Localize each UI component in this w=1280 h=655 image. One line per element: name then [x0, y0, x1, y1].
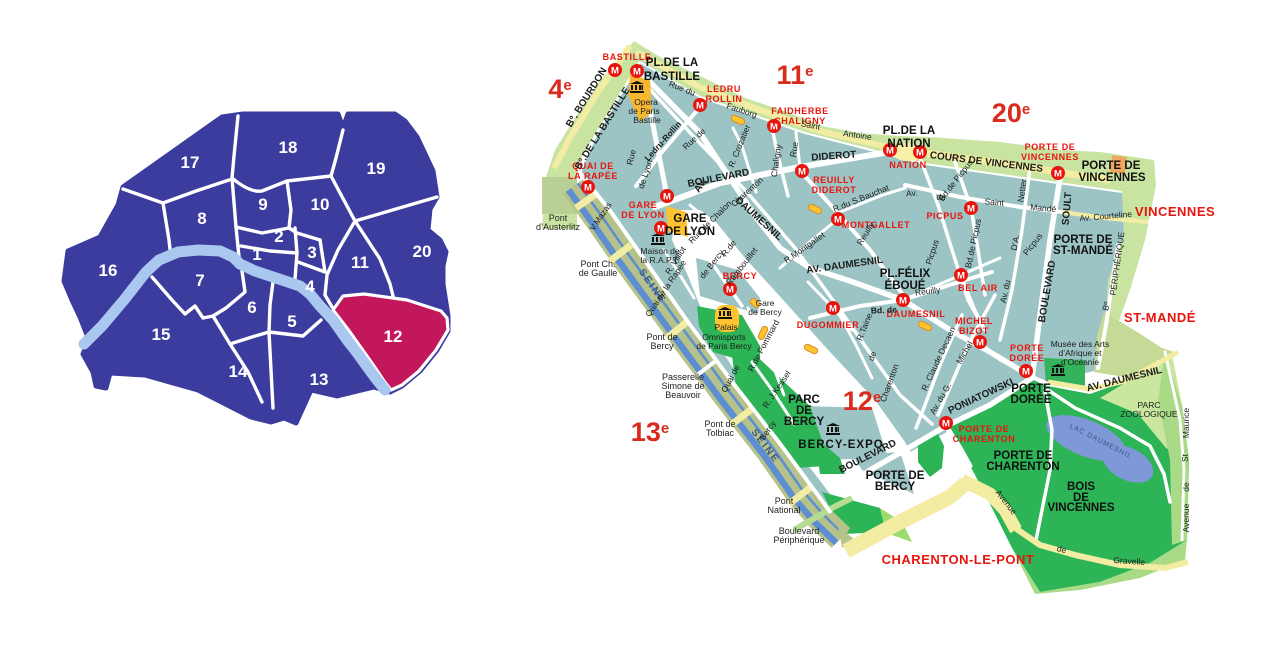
svg-text:DORÉE: DORÉE: [1009, 353, 1044, 363]
svg-text:M: M: [957, 271, 965, 282]
svg-text:Saint: Saint: [984, 196, 1005, 208]
svg-text:11: 11: [351, 253, 369, 272]
svg-text:14: 14: [229, 362, 248, 381]
svg-text:M: M: [1022, 367, 1030, 378]
svg-text:NATION: NATION: [889, 160, 926, 170]
svg-text:BASTILLE: BASTILLE: [603, 52, 652, 62]
svg-text:Maurice: Maurice: [1181, 408, 1191, 439]
svg-text:M: M: [657, 224, 665, 235]
svg-text:PORTE: PORTE: [1010, 343, 1044, 353]
svg-text:12: 12: [384, 327, 403, 346]
svg-text:St: St: [1180, 453, 1190, 462]
svg-text:DORÉE: DORÉE: [1011, 393, 1052, 406]
svg-text:18: 18: [279, 138, 298, 157]
svg-text:de Bercy: de Bercy: [748, 307, 782, 317]
svg-text:de Paris Bercy: de Paris Bercy: [696, 341, 752, 351]
svg-text:5: 5: [287, 312, 296, 331]
svg-text:13e: 13e: [631, 417, 669, 447]
svg-text:M: M: [942, 419, 950, 430]
svg-text:REUILLY: REUILLY: [813, 175, 855, 185]
svg-text:VINCENNES: VINCENNES: [1047, 502, 1114, 514]
svg-text:M: M: [967, 204, 975, 215]
svg-text:PICPUS: PICPUS: [926, 211, 963, 221]
svg-text:LA RAPÉE: LA RAPÉE: [568, 171, 618, 181]
svg-text:MICHEL: MICHEL: [955, 316, 993, 326]
svg-text:Palais: Palais: [714, 322, 737, 332]
svg-text:GARE: GARE: [629, 200, 657, 210]
svg-text:9: 9: [258, 195, 267, 214]
svg-text:M: M: [696, 101, 704, 112]
svg-text:ST-MANDÉ: ST-MANDÉ: [1053, 244, 1113, 257]
svg-text:PL.FÉLIX: PL.FÉLIX: [880, 267, 931, 280]
svg-text:2: 2: [274, 227, 283, 246]
svg-text:VINCENNES: VINCENNES: [1021, 152, 1079, 162]
svg-text:DUGOMMIER: DUGOMMIER: [797, 320, 859, 330]
svg-text:VINCENNES: VINCENNES: [1078, 172, 1145, 184]
svg-text:CHARENTON: CHARENTON: [986, 461, 1059, 473]
svg-text:LEDRU: LEDRU: [707, 84, 741, 94]
svg-text:Beauvoir: Beauvoir: [665, 390, 701, 400]
svg-text:de: de: [936, 192, 946, 202]
svg-text:PORTE DE: PORTE DE: [1082, 160, 1141, 172]
svg-text:PORTE DE: PORTE DE: [1025, 142, 1076, 152]
svg-text:Av.: Av.: [906, 188, 918, 199]
svg-text:ZOOLOGIQUE: ZOOLOGIQUE: [1120, 409, 1177, 419]
svg-text:Bd. de: Bd. de: [871, 304, 898, 315]
svg-text:15: 15: [152, 325, 171, 344]
svg-text:de: de: [1181, 482, 1191, 492]
svg-text:Bastille: Bastille: [633, 115, 661, 125]
svg-text:Périphérique: Périphérique: [773, 535, 824, 545]
svg-text:M: M: [663, 192, 671, 203]
svg-text:20: 20: [413, 242, 432, 261]
svg-text:10: 10: [311, 195, 330, 214]
svg-text:4e: 4e: [548, 74, 571, 104]
svg-text:M: M: [829, 304, 837, 315]
svg-text:Bercy: Bercy: [650, 341, 674, 351]
svg-text:19: 19: [367, 159, 386, 178]
svg-text:M: M: [798, 167, 806, 178]
svg-text:de Gaulle: de Gaulle: [579, 268, 618, 278]
svg-text:7: 7: [195, 271, 204, 290]
svg-text:National: National: [767, 505, 800, 515]
svg-text:M: M: [976, 338, 984, 349]
svg-text:DIDEROT: DIDEROT: [812, 185, 857, 195]
svg-text:PL.DE LA: PL.DE LA: [883, 125, 935, 137]
svg-text:4: 4: [305, 277, 315, 296]
svg-text:11e: 11e: [777, 60, 814, 90]
svg-text:Avenue: Avenue: [1181, 503, 1191, 532]
svg-text:17: 17: [181, 153, 200, 172]
svg-text:20e: 20e: [992, 98, 1030, 128]
svg-text:M: M: [633, 67, 641, 78]
svg-text:DE LYON: DE LYON: [621, 210, 664, 220]
svg-text:FAIDHERBE: FAIDHERBE: [771, 106, 828, 116]
svg-text:M: M: [611, 66, 619, 77]
svg-text:16: 16: [99, 261, 118, 280]
svg-text:1: 1: [252, 245, 261, 264]
svg-text:VINCENNES: VINCENNES: [1135, 204, 1215, 219]
svg-text:M: M: [1054, 169, 1062, 180]
svg-text:BERCY: BERCY: [784, 416, 825, 428]
svg-text:8: 8: [197, 209, 206, 228]
svg-text:PORTE DE: PORTE DE: [959, 424, 1010, 434]
svg-text:13: 13: [310, 370, 329, 389]
svg-text:BERCY: BERCY: [875, 481, 916, 493]
svg-text:d’Austerlitz: d’Austerlitz: [536, 222, 581, 232]
svg-text:BEL AIR: BEL AIR: [958, 283, 998, 293]
svg-text:6: 6: [247, 298, 256, 317]
svg-text:CHARENTON: CHARENTON: [953, 434, 1016, 444]
svg-text:NATION: NATION: [887, 138, 930, 150]
svg-text:CHARENTON-LE-PONT: CHARENTON-LE-PONT: [882, 552, 1035, 567]
svg-text:3: 3: [307, 243, 316, 262]
svg-text:ST-MANDÉ: ST-MANDÉ: [1124, 310, 1196, 325]
svg-text:PL.DE LA: PL.DE LA: [646, 57, 698, 69]
svg-text:BIZOT: BIZOT: [959, 326, 989, 336]
svg-text:d’Océanie: d’Océanie: [1061, 357, 1100, 367]
svg-text:Tolbiac: Tolbiac: [706, 428, 735, 438]
svg-text:M: M: [899, 296, 907, 307]
svg-text:M: M: [584, 183, 592, 194]
